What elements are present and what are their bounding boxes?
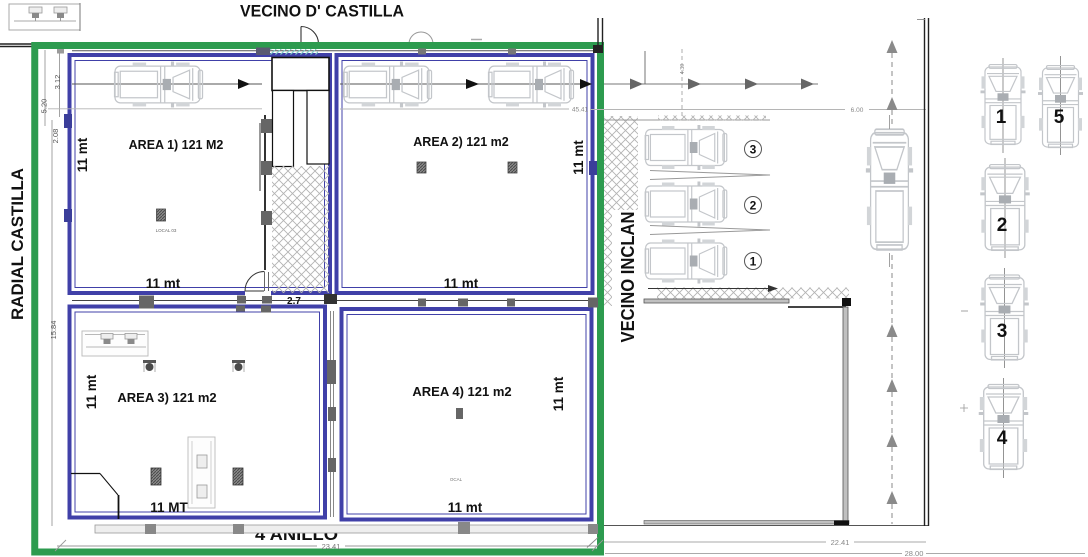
svg-text:2: 2	[997, 215, 1008, 236]
svg-text:3.12: 3.12	[53, 75, 62, 90]
svg-text:LOCAL 03: LOCAL 03	[156, 228, 177, 233]
svg-text:2.08: 2.08	[51, 129, 60, 144]
svg-text:AREA 4) 121 m2: AREA 4) 121 m2	[412, 384, 511, 399]
svg-text:11 MT: 11 MT	[150, 500, 188, 515]
svg-text:5.20: 5.20	[40, 99, 49, 114]
svg-text:11 mt: 11 mt	[75, 137, 90, 172]
svg-text:VECINO D' CASTILLA: VECINO D' CASTILLA	[240, 3, 404, 21]
svg-text:4.39: 4.39	[680, 64, 686, 75]
svg-text:4: 4	[997, 428, 1008, 449]
svg-text:VECINO INCLAN: VECINO INCLAN	[618, 212, 638, 343]
svg-text:AREA 1) 121 M2: AREA 1) 121 M2	[129, 138, 224, 152]
svg-text:1: 1	[750, 255, 757, 269]
svg-text:5: 5	[1054, 107, 1065, 128]
svg-text:RADIAL CASTILLA: RADIAL CASTILLA	[8, 168, 27, 320]
svg-text:2.7: 2.7	[287, 296, 301, 307]
svg-text:AREA 3) 121 m2: AREA 3) 121 m2	[117, 390, 216, 405]
svg-text:OCAL: OCAL	[450, 477, 463, 482]
svg-text:28.00: 28.00	[905, 549, 924, 557]
svg-text:2: 2	[750, 199, 757, 213]
svg-text:3: 3	[750, 143, 757, 157]
svg-text:45.41: 45.41	[572, 107, 589, 114]
svg-text:6.00: 6.00	[851, 107, 864, 114]
svg-text:23.41: 23.41	[322, 542, 341, 551]
svg-text:22.41: 22.41	[831, 538, 850, 547]
svg-text:11 mt: 11 mt	[571, 140, 586, 175]
svg-text:11 mt: 11 mt	[448, 500, 483, 515]
svg-text:11 mt: 11 mt	[551, 376, 566, 411]
svg-text:AREA 2) 121 m2: AREA 2) 121 m2	[413, 135, 508, 149]
svg-text:1: 1	[996, 107, 1007, 128]
svg-text:11 mt: 11 mt	[146, 276, 181, 291]
svg-text:15.84: 15.84	[49, 321, 58, 340]
svg-text:11 mt: 11 mt	[444, 276, 479, 291]
svg-text:3: 3	[997, 321, 1008, 342]
svg-text:11 mt: 11 mt	[84, 374, 99, 409]
